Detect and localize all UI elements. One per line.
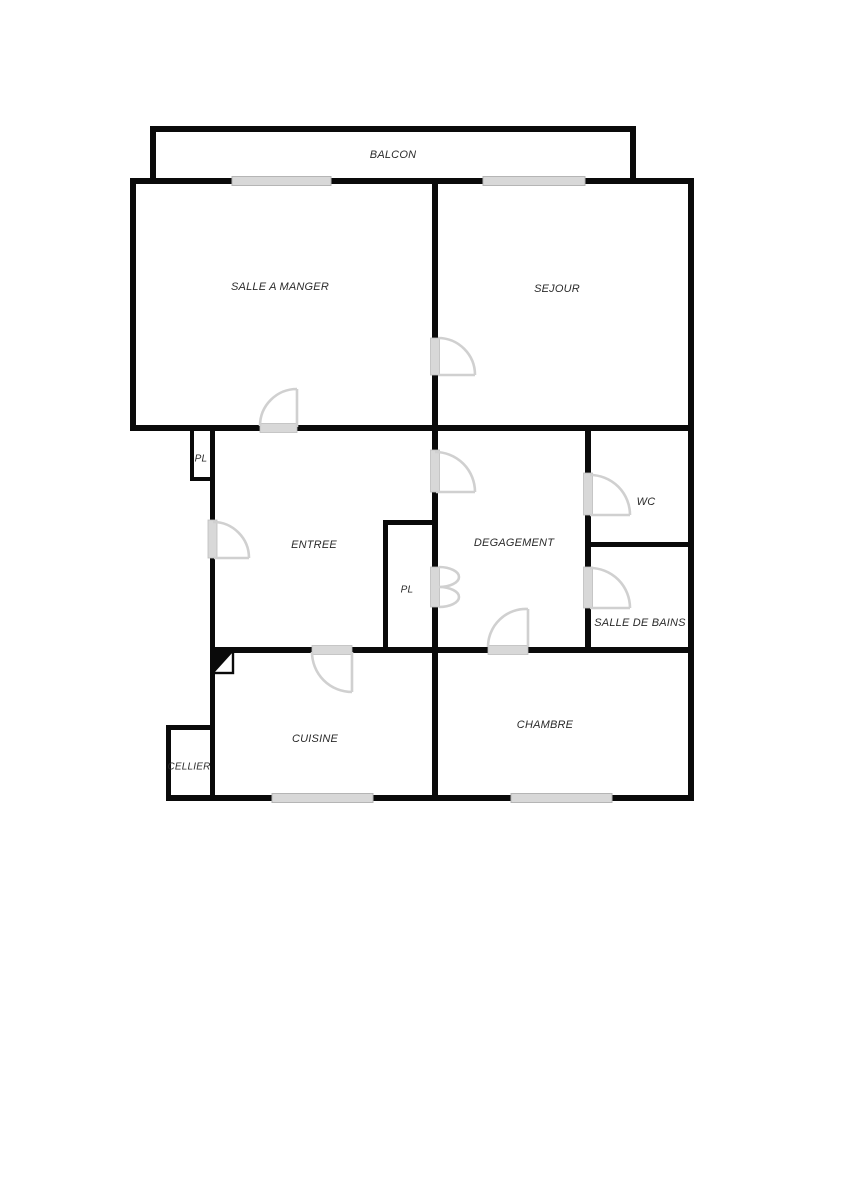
pl-entree-bottom-wall [190,477,214,481]
door-arc-degagement-icon [435,452,475,492]
room-label-chambre: CHAMBRE [517,719,573,731]
central-wall-segment-a [432,178,438,338]
door-arc-salle-a-manger-icon [260,389,297,427]
room-label-salle-a-manger: SALLE A MANGER [231,281,329,293]
wc-wall-segment-a [585,425,591,473]
outer-right-wall [688,178,694,801]
pl-entree-left-wall [190,425,194,480]
window-salle-a-manger-icon [232,177,331,186]
floor-plan-drawing [0,0,848,1200]
pl-degagement-left-wall [383,520,388,650]
interior-walls [130,178,694,801]
door-arc-entrance-icon [213,522,249,558]
door-openings [208,338,593,655]
opening-cuisine [312,646,352,655]
window-chambre-icon [511,794,612,803]
door-arc-wc-icon [590,475,630,515]
room-label-sejour: SEJOUR [534,283,580,295]
lower-divider-segment-b [352,647,488,653]
central-wall-segment-b [432,375,438,450]
door-swings [213,338,630,692]
opening-pl-degagement [431,567,440,607]
opening-entrance [208,520,217,558]
window-cuisine-icon [272,794,373,803]
room-label-wc: WC [637,496,656,508]
cellier-top-wall [166,725,213,730]
double-door-pl-icon [439,567,459,607]
wc-wall-segment-b [585,515,591,567]
outer-left-wall [130,178,136,431]
door-arc-salle-de-bains-icon [590,568,630,608]
outer-top-wall [130,178,694,184]
balcony-right-wall [630,126,636,182]
wc-sdb-divider-wall [585,542,694,547]
room-label-salle-de-bains: SALLE DE BAINS [594,617,685,629]
balcony-top-wall [150,126,636,132]
windows [232,177,612,803]
central-wall-segment-d [432,607,438,801]
left-inner-wall-segment-b [210,558,215,801]
door-arc-chambre-icon [488,609,528,647]
opening-salle-de-bains [584,567,593,608]
floor-plan-canvas: BALCON SALLE A MANGER SEJOUR PL ENTREE D… [0,0,848,1200]
opening-degagement [431,450,440,492]
wc-wall-segment-c [585,608,591,650]
room-label-cellier: CELLIER [167,762,210,773]
mid-wall-right-segment [297,425,694,431]
pl-degagement-top-wall [383,520,437,525]
opening-chambre [488,646,528,655]
balcony-left-wall [150,126,156,182]
central-wall-segment-c [432,492,438,567]
opening-salle-a-manger [260,424,297,433]
outer-bottom-wall [168,795,694,801]
left-inner-wall-segment-a [210,425,215,520]
door-arc-sejour-icon [438,338,475,375]
opening-sejour [431,338,440,375]
lower-divider-segment-c [528,647,694,653]
technical-shaft-icon [214,652,233,673]
door-arc-cuisine-icon [312,652,352,692]
window-sejour-icon [483,177,585,186]
room-label-pl-degagement: PL [401,585,414,596]
room-label-cuisine: CUISINE [292,733,338,745]
opening-wc [584,473,593,515]
room-label-balcon: BALCON [370,149,416,161]
room-label-degagement: DEGAGEMENT [474,537,554,549]
room-label-pl-entree: PL [195,454,208,465]
mid-wall-left-segment [130,425,260,431]
room-label-entree: ENTREE [291,539,337,551]
